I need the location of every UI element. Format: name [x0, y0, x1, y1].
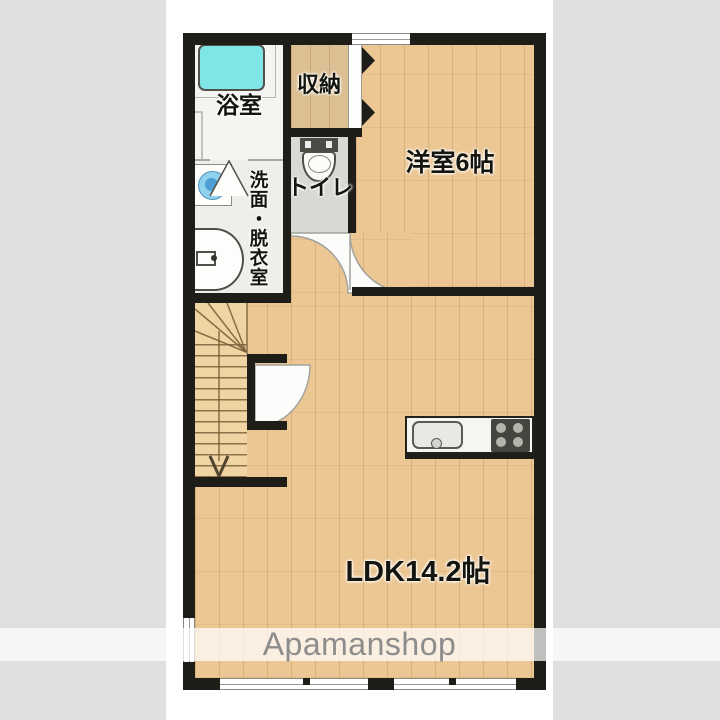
- floorplan-screenshot: { "watermark": { "brand": "Apamanshop" }…: [0, 0, 720, 720]
- watermark-band: Apamanshop: [0, 628, 720, 661]
- vanity-knob: [211, 255, 217, 261]
- wall-stair-bottom: [183, 477, 287, 487]
- stove-icon: [491, 419, 530, 452]
- stair-treads: [195, 344, 247, 477]
- counter-base-line: [405, 454, 534, 459]
- toilet-tank: [300, 138, 338, 152]
- wall-bottom-a: [183, 678, 220, 690]
- wall-left-upper: [183, 33, 195, 618]
- window-icon: [220, 678, 368, 690]
- western-room-label: 洋室6帖: [366, 149, 534, 178]
- wall-stair-stub-top: [247, 354, 287, 363]
- bathtub-icon: [198, 44, 265, 91]
- ldk-label: LDK14.2帖: [316, 556, 520, 589]
- hallway-floor: [291, 233, 410, 293]
- wall-stair-right: [247, 354, 255, 430]
- wall-right: [534, 33, 546, 690]
- wall-top-right: [410, 33, 546, 45]
- wall-bottom-b: [368, 678, 394, 690]
- window-mullion: [449, 678, 456, 685]
- kitchen-faucet: [431, 438, 442, 449]
- floor-plan: 浴室 収納 洋室6帖 トイレ 洗面・脱衣室 LDK14.2帖: [0, 0, 720, 720]
- washing-machine-icon: [192, 164, 232, 206]
- window-icon: [352, 33, 410, 45]
- wall-room-divider: [352, 287, 546, 296]
- washroom-label: 洗面・脱衣室: [240, 170, 267, 296]
- washer-drum-center: [205, 178, 218, 191]
- closet-label: 収納: [289, 72, 349, 97]
- window-mullion: [303, 678, 310, 685]
- wall-top-left: [183, 33, 352, 45]
- bathroom-label: 浴室: [195, 92, 283, 118]
- wall-washroom-bottom: [183, 293, 291, 303]
- wall-bottom-c: [516, 678, 546, 690]
- closet-door-icon: [348, 45, 362, 128]
- toilet-label: トイレ: [285, 175, 355, 200]
- brand-watermark: Apamanshop: [166, 628, 553, 661]
- wall-toilet-top: [283, 128, 362, 137]
- wall-stair-stub-bottom: [247, 421, 287, 430]
